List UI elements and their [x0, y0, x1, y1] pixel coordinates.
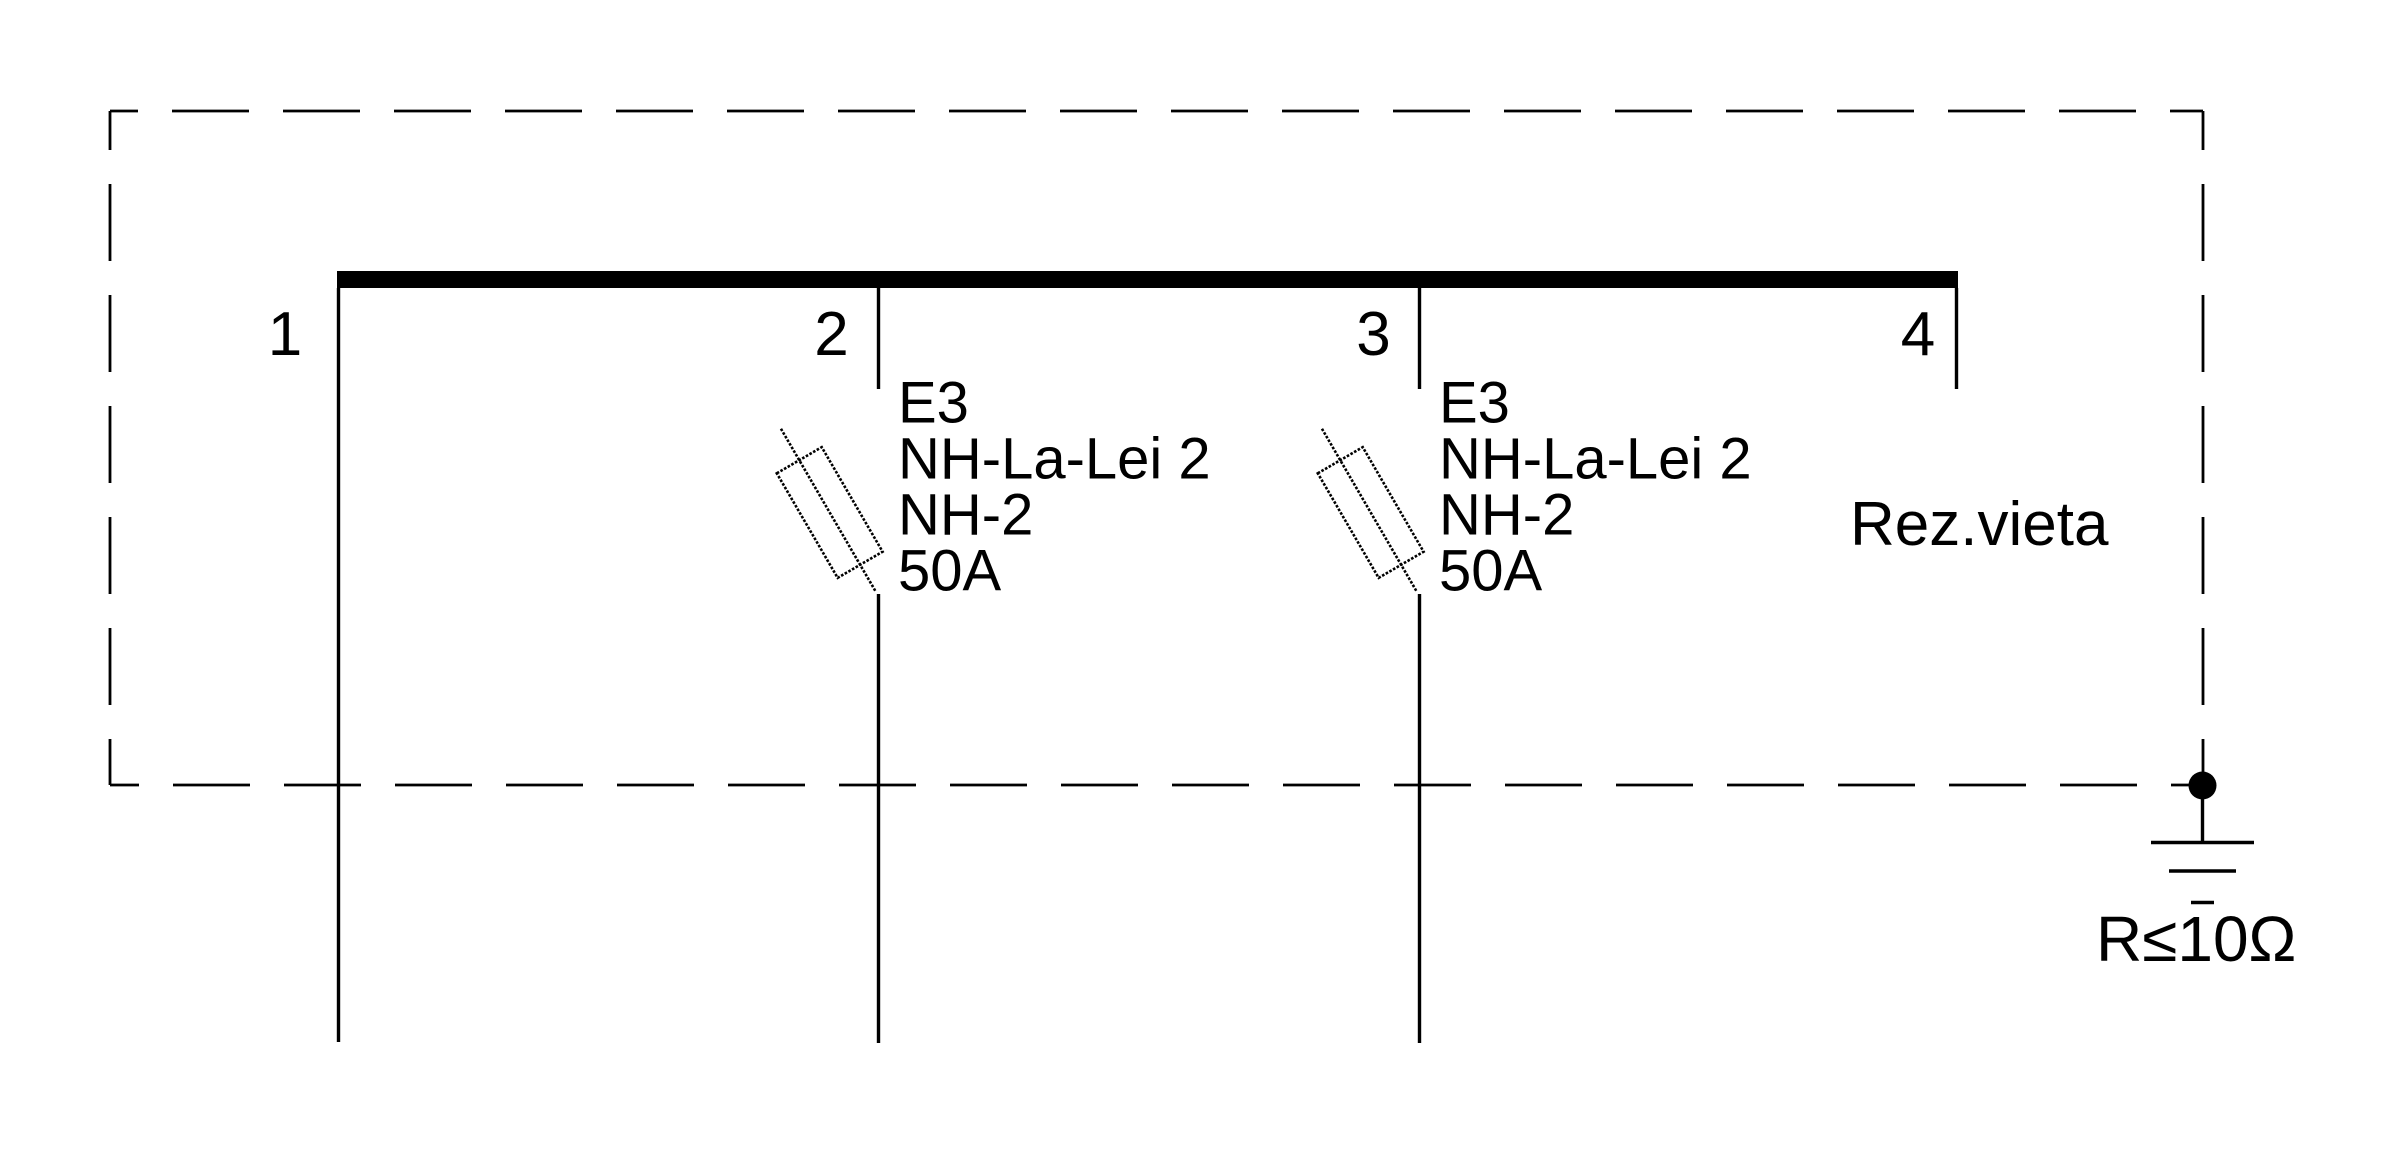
svg-text:E3NH-La-Lei 2NH-250A: E3NH-La-Lei 2NH-250A [898, 371, 1211, 604]
svg-text:3: 3 [1356, 300, 1390, 369]
svg-text:2: 2 [814, 300, 848, 369]
svg-text:Rez.vieta: Rez.vieta [1850, 490, 2109, 559]
svg-text:4: 4 [1901, 300, 1935, 369]
svg-text:E3NH-La-Lei 2NH-250A: E3NH-La-Lei 2NH-250A [1439, 371, 1752, 604]
svg-text:1: 1 [268, 300, 302, 369]
svg-text:R≤10Ω: R≤10Ω [2096, 903, 2296, 975]
